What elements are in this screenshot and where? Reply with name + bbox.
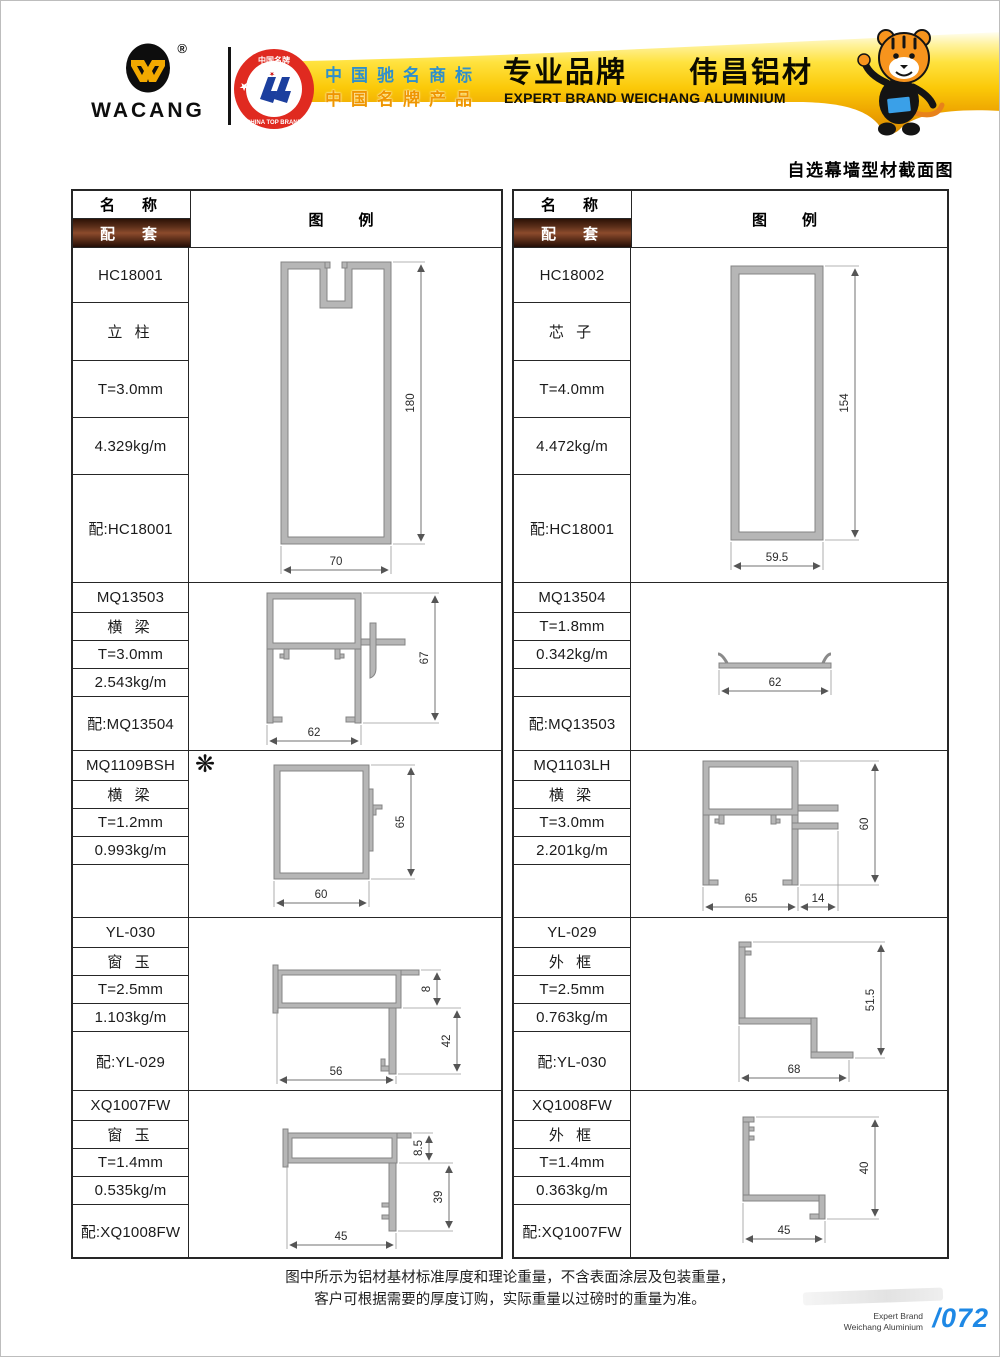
dim-label-width: 70 [330, 556, 343, 568]
profile-code: MQ1103LH [514, 751, 630, 781]
profile-match: 配:MQ13503 [514, 697, 630, 750]
dim-label-top: 8.5 [413, 1140, 425, 1156]
header-divider [228, 47, 231, 125]
dim-label-height: 154 [839, 393, 851, 413]
profile-type: 横 梁 [73, 613, 188, 641]
profile-weight: 0.363kg/m [514, 1177, 630, 1205]
profile-weight: 0.763kg/m [514, 1004, 630, 1032]
profile-thickness: T=1.8mm [514, 613, 630, 641]
profile-code: YL-030 [73, 918, 188, 948]
page-number: /072 [932, 1303, 989, 1334]
table-header-example: 图 例 [632, 191, 947, 247]
dim-label-offset: 14 [812, 893, 825, 905]
dim-label-height: 51.5 [865, 989, 877, 1011]
profile-empty [514, 669, 630, 697]
dim-label-width: 59.5 [766, 552, 788, 564]
footer-brand-line-1: Expert Brand [844, 1311, 923, 1322]
profile-type: 窗 玉 [73, 948, 188, 976]
table-header-match: 配 套 [73, 219, 190, 247]
table-row: XQ1007FW 窗 玉 T=1.4mm 0.535kg/m 配:XQ1008F… [73, 1091, 501, 1257]
table-header-example: 图 例 [191, 191, 501, 247]
table-header-name: 名 称 [73, 191, 190, 219]
profile-type: 立 柱 [73, 303, 188, 361]
drawing-hc18001: 180 70 [189, 248, 501, 582]
profile-thickness: T=1.2mm [73, 809, 188, 837]
profile-thickness: T=3.0mm [73, 361, 188, 418]
tiger-mascot-icon [849, 21, 949, 139]
profile-thickness: T=4.0mm [514, 361, 630, 418]
profile-code: MQ1109BSH [73, 751, 188, 781]
profile-weight: 4.329kg/m [73, 418, 188, 475]
profile-code: MQ13504 [514, 583, 630, 613]
profile-type: 芯 子 [514, 303, 630, 361]
profile-code: XQ1007FW [73, 1091, 188, 1121]
drawing-yl029: 51.5 68 [631, 918, 947, 1090]
dim-label-width: 62 [308, 727, 321, 739]
drawing-yl030: 8 42 56 [189, 918, 501, 1090]
registered-symbol: ® [177, 41, 187, 56]
dim-label-height: 60 [859, 818, 871, 831]
dim-label-width: 65 [745, 893, 758, 905]
footer-brand-line-2: Weichang Aluminium [844, 1322, 923, 1333]
top-brand-badge-icon: 中国名牌 CHINA TOP BRAND [232, 47, 316, 131]
profile-match: 配:HC18001 [514, 475, 630, 582]
profile-thickness: T=3.0mm [514, 809, 630, 837]
profile-type: 外 框 [514, 948, 630, 976]
table-row: YL-030 窗 玉 T=2.5mm 1.103kg/m 配:YL-029 [73, 918, 501, 1091]
drawing-mq1109bsh: ❋ 65 60 [189, 751, 501, 917]
profile-weight: 1.103kg/m [73, 1004, 188, 1032]
drawing-xq1008fw: 40 45 [631, 1091, 947, 1257]
dim-label-top: 8 [421, 986, 433, 992]
drawing-mq1103lh: 60 65 14 [631, 751, 947, 917]
brand-mark-icon [125, 43, 171, 93]
profile-weight: 0.993kg/m [73, 837, 188, 865]
table-row: YL-029 外 框 T=2.5mm 0.763kg/m 配:YL-030 [514, 918, 947, 1091]
dim-label-height: 42 [441, 1035, 453, 1048]
dim-label-height: 65 [395, 816, 407, 829]
profile-thickness: T=2.5mm [73, 976, 188, 1004]
profile-code: XQ1008FW [514, 1091, 630, 1121]
dim-label-width: 45 [335, 1231, 348, 1243]
drawing-mq13504: 62 [631, 583, 947, 750]
dim-label-width: 56 [330, 1066, 343, 1078]
profile-weight: 2.543kg/m [73, 669, 188, 697]
profile-weight: 2.201kg/m [514, 837, 630, 865]
page-title: 自选幕墙型材截面图 [788, 156, 955, 181]
profile-match: 配:YL-029 [73, 1032, 188, 1090]
dim-label-width: 62 [769, 677, 782, 689]
profile-thickness: T=2.5mm [514, 976, 630, 1004]
profile-match [73, 865, 188, 917]
banner-subtitle: EXPERT BRAND WEICHANG ALUMINIUM [504, 90, 786, 106]
dim-label-width: 60 [315, 889, 328, 901]
banner-product-cn: 中国名牌产品 [325, 85, 481, 110]
profile-type: 横 梁 [73, 781, 188, 809]
dim-label-height: 40 [859, 1162, 871, 1175]
svg-text:CHINA TOP BRAND: CHINA TOP BRAND [246, 120, 303, 126]
profile-thickness: T=3.0mm [73, 641, 188, 669]
footer-brand-text: Expert Brand Weichang Aluminium [844, 1311, 923, 1333]
table-row: MQ1103LH 横 梁 T=3.0mm 2.201kg/m [514, 751, 947, 918]
svg-text:中国名牌: 中国名牌 [258, 55, 290, 65]
profile-empty [514, 865, 630, 917]
profile-type: 外 框 [514, 1121, 630, 1149]
dim-label-width: 68 [788, 1064, 801, 1076]
profile-match: 配:XQ1007FW [514, 1205, 630, 1257]
profile-weight: 4.472kg/m [514, 418, 630, 475]
profile-type: 窗 玉 [73, 1121, 188, 1149]
wacang-logo: ® WACANG [73, 43, 223, 123]
dim-label-height: 67 [419, 652, 431, 665]
table-row: MQ13504 T=1.8mm 0.342kg/m 配:MQ13503 62 [514, 583, 947, 751]
drawing-xq1007fw: 8.5 39 45 [189, 1091, 501, 1257]
table-row: MQ13503 横 梁 T=3.0mm 2.543kg/m 配:MQ13504 [73, 583, 501, 751]
profile-type: 横 梁 [514, 781, 630, 809]
table-row: HC18001 立 柱 T=3.0mm 4.329kg/m 配:HC18001 … [73, 248, 501, 583]
profile-match: 配:MQ13504 [73, 697, 188, 750]
dim-label-height: 39 [433, 1191, 445, 1204]
profile-weight: 0.342kg/m [514, 641, 630, 669]
table-row: XQ1008FW 外 框 T=1.4mm 0.363kg/m 配:XQ1007F… [514, 1091, 947, 1257]
table-row: MQ1109BSH 横 梁 T=1.2mm 0.993kg/m ❋ [73, 751, 501, 918]
drawing-hc18002: 154 59.5 [631, 248, 947, 582]
profile-code: HC18001 [73, 248, 188, 303]
table-header-name: 名 称 [514, 191, 631, 219]
profile-match: 配:XQ1008FW [73, 1205, 188, 1257]
asterisk-marker: ❋ [195, 753, 215, 777]
profile-match: 配:HC18001 [73, 475, 188, 582]
dim-label-width: 45 [778, 1225, 791, 1237]
profile-match: 配:YL-030 [514, 1032, 630, 1090]
profile-weight: 0.535kg/m [73, 1177, 188, 1205]
profile-code: HC18002 [514, 248, 630, 303]
drawing-mq13503: 67 62 [189, 583, 501, 750]
profile-tables: 名 称 配 套 图 例 HC18001 立 柱 T=3.0mm 4.329kg/… [71, 189, 949, 1259]
table-row: HC18002 芯 子 T=4.0mm 4.472kg/m 配:HC18001 … [514, 248, 947, 583]
profile-thickness: T=1.4mm [514, 1149, 630, 1177]
banner-slogan-cn: 中国驰名商标 [325, 61, 481, 86]
profile-code: YL-029 [514, 918, 630, 948]
dim-label-height: 180 [405, 393, 417, 412]
profile-table-right: 名 称 配 套 图 例 HC18002 芯 子 T=4.0mm 4.472kg/… [512, 189, 949, 1259]
profile-table-left: 名 称 配 套 图 例 HC18001 立 柱 T=3.0mm 4.329kg/… [71, 189, 503, 1259]
table-header-match: 配 套 [514, 219, 631, 247]
catalog-page: ® WACANG 中国名牌 CHINA TOP BRAND 中国驰名商标 中国名… [0, 0, 1000, 1357]
banner-title: 专业品牌 伟昌铝材 [503, 49, 813, 91]
footnote-line-1: 图中所示为铝材基材标准厚度和理论重量，不含表面涂层及包装重量， [71, 1267, 949, 1289]
brand-name: WACANG [73, 99, 223, 123]
profile-code: MQ13503 [73, 583, 188, 613]
profile-thickness: T=1.4mm [73, 1149, 188, 1177]
